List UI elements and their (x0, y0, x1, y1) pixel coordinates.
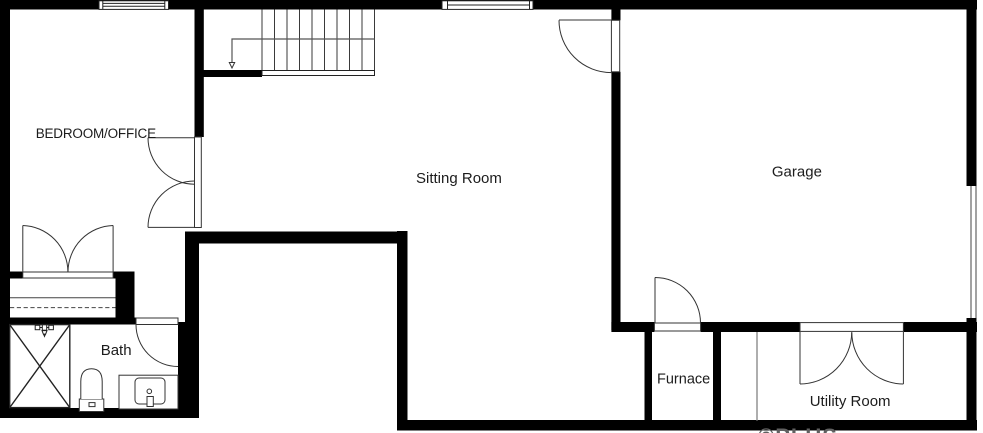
svg-text:Garage: Garage (772, 163, 822, 180)
svg-text:©PLUS: ©PLUS (758, 424, 838, 433)
svg-text:Sitting Room: Sitting Room (416, 170, 502, 187)
svg-text:Bath: Bath (101, 342, 132, 359)
svg-text:Utility Room: Utility Room (810, 393, 891, 410)
svg-text:BEDROOM/OFFICE: BEDROOM/OFFICE (36, 126, 156, 141)
svg-text:Furnace: Furnace (657, 371, 710, 387)
